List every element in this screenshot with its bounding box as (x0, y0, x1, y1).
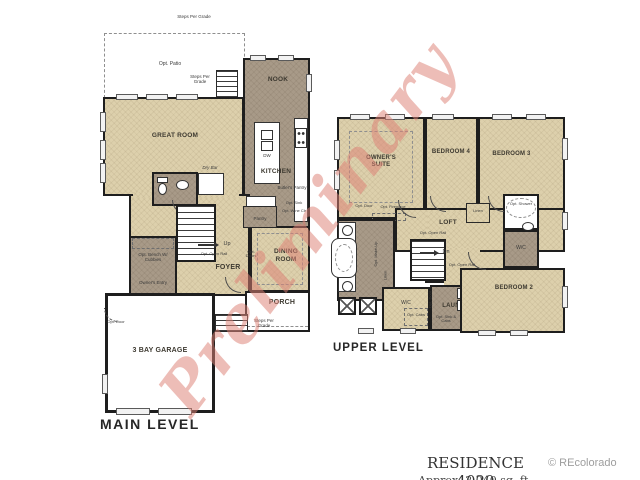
shower-icon (338, 297, 356, 315)
opt-shower-label: Opt. Shower (507, 202, 535, 214)
garage-label: 3 BAY GARAGE (120, 347, 200, 356)
opt-doors-label: Opt. Doors (242, 250, 260, 264)
great-room-label: GREAT ROOM (145, 132, 205, 150)
opt-cabs-label: Opt. Cabs (405, 313, 427, 321)
window (116, 94, 138, 100)
window (510, 330, 528, 336)
up-arrow-icon (198, 244, 214, 246)
butlers-pantry-label: Butler's Pantry (277, 185, 307, 197)
window (146, 94, 168, 100)
copyright-label: © REcolorado (548, 457, 638, 471)
owners-entry-label: Owner's Entry (135, 280, 171, 292)
bedroom4-label: BEDROOM 4 (424, 149, 478, 157)
opt-open-rail-label: Opt. Open Rail (413, 231, 453, 238)
opt-door-label: Opt. Door (354, 204, 374, 216)
dn-label: Dn (440, 249, 452, 257)
window (176, 94, 198, 100)
dishwasher-label: DW (258, 153, 276, 160)
residence-title: RESIDENCE 4020 (408, 454, 543, 472)
window (432, 114, 454, 120)
dry-bar-cabinet (198, 173, 224, 195)
range-icon (295, 128, 307, 148)
garage-door (158, 408, 192, 415)
linen-label: Linen (467, 209, 489, 216)
opt-patio-label: Opt. Patio (148, 62, 192, 70)
sink-icon (342, 225, 353, 236)
window (526, 114, 546, 120)
opt-bench-label: Opt. Bench W/ Cubbies (131, 252, 175, 268)
window (100, 163, 106, 183)
owners-suite-label: OWNER'S SUITE (356, 155, 406, 171)
opt-sink-cabs-label: Opt. Sink & Cabs (432, 315, 460, 329)
floorplan-sheet: { "watermark": { "text": "Preliminary", … (0, 0, 640, 480)
bedroom3-label: BEDROOM 3 (484, 151, 539, 159)
window (100, 112, 106, 132)
patio-steps (216, 70, 238, 98)
upper-level-title: UPPER LEVEL (333, 342, 463, 356)
opt-wine-label: Opt. Wine Clr (280, 209, 308, 221)
window (562, 212, 568, 230)
opt-open-rail-label: Opt. Open Rail (194, 252, 234, 259)
bedroom2-area (460, 268, 565, 333)
window (358, 328, 374, 334)
dn-arrow-icon (434, 250, 439, 256)
cropped-caption-text: Approx. 2,040 sq. ft. (418, 474, 532, 480)
opt-sink-label: Opt. Sink (281, 201, 307, 208)
window (478, 330, 496, 336)
foyer-label: FOYER (206, 264, 250, 273)
window (562, 138, 568, 160)
window (492, 114, 512, 120)
window (350, 114, 370, 120)
opt-makeup-label: Opt. Make-Up (374, 234, 382, 274)
cropped-caption: Approx. 2,040 sq. ft. (400, 474, 550, 480)
loft-label: LOFT (432, 219, 464, 228)
island-sink-icon (261, 130, 273, 140)
pantry-label: Pantry (246, 216, 274, 224)
window (306, 74, 312, 92)
up-label: Up (220, 241, 234, 249)
dn-arrow-icon (420, 252, 434, 254)
opt-door-label: Opt. Door (429, 288, 436, 312)
nook-label: NOOK (256, 76, 300, 85)
window (400, 328, 416, 334)
window (334, 170, 340, 190)
porch-steps (215, 314, 248, 332)
main-level-plan: Steps Per Grade Opt. Patio Steps Per Gra… (0, 0, 320, 480)
kitchen-label: KITCHEN (247, 168, 305, 177)
cubbies (132, 238, 174, 249)
bedroom2-label: BEDROOM 2 (484, 285, 544, 293)
up-arrow-icon (214, 242, 219, 248)
window (334, 140, 340, 160)
wc-label: W/C (512, 246, 530, 254)
tub-basin (335, 244, 353, 272)
island-sink-icon (261, 141, 273, 151)
dry-bar-label: Dry Bar (196, 165, 224, 173)
toilet-icon (158, 183, 167, 195)
sink-icon (176, 180, 189, 190)
stairs-down (410, 239, 446, 281)
dining-room-label: DINING ROOM (266, 248, 306, 266)
window (385, 114, 405, 120)
steps-per-grade-label: Steps Per Grade (249, 318, 279, 332)
window (100, 140, 106, 160)
linen-label: Linen (384, 263, 391, 289)
window (250, 55, 266, 61)
steps-per-grade-label: Steps Per Grade (186, 74, 214, 90)
sink-icon (342, 281, 353, 292)
garage-door (116, 408, 150, 415)
upper-level-plan: OWNER'S SUITE BEDROOM 4 BEDROOM 3 LOFT O… (320, 0, 640, 480)
window (102, 374, 108, 394)
steps-per-grade-label: Steps Per Grade (176, 14, 212, 28)
window (562, 286, 568, 308)
closet-icon (359, 297, 377, 315)
porch-label: PORCH (262, 299, 302, 308)
window (278, 55, 294, 61)
main-level-title: MAIN LEVEL (100, 416, 260, 432)
